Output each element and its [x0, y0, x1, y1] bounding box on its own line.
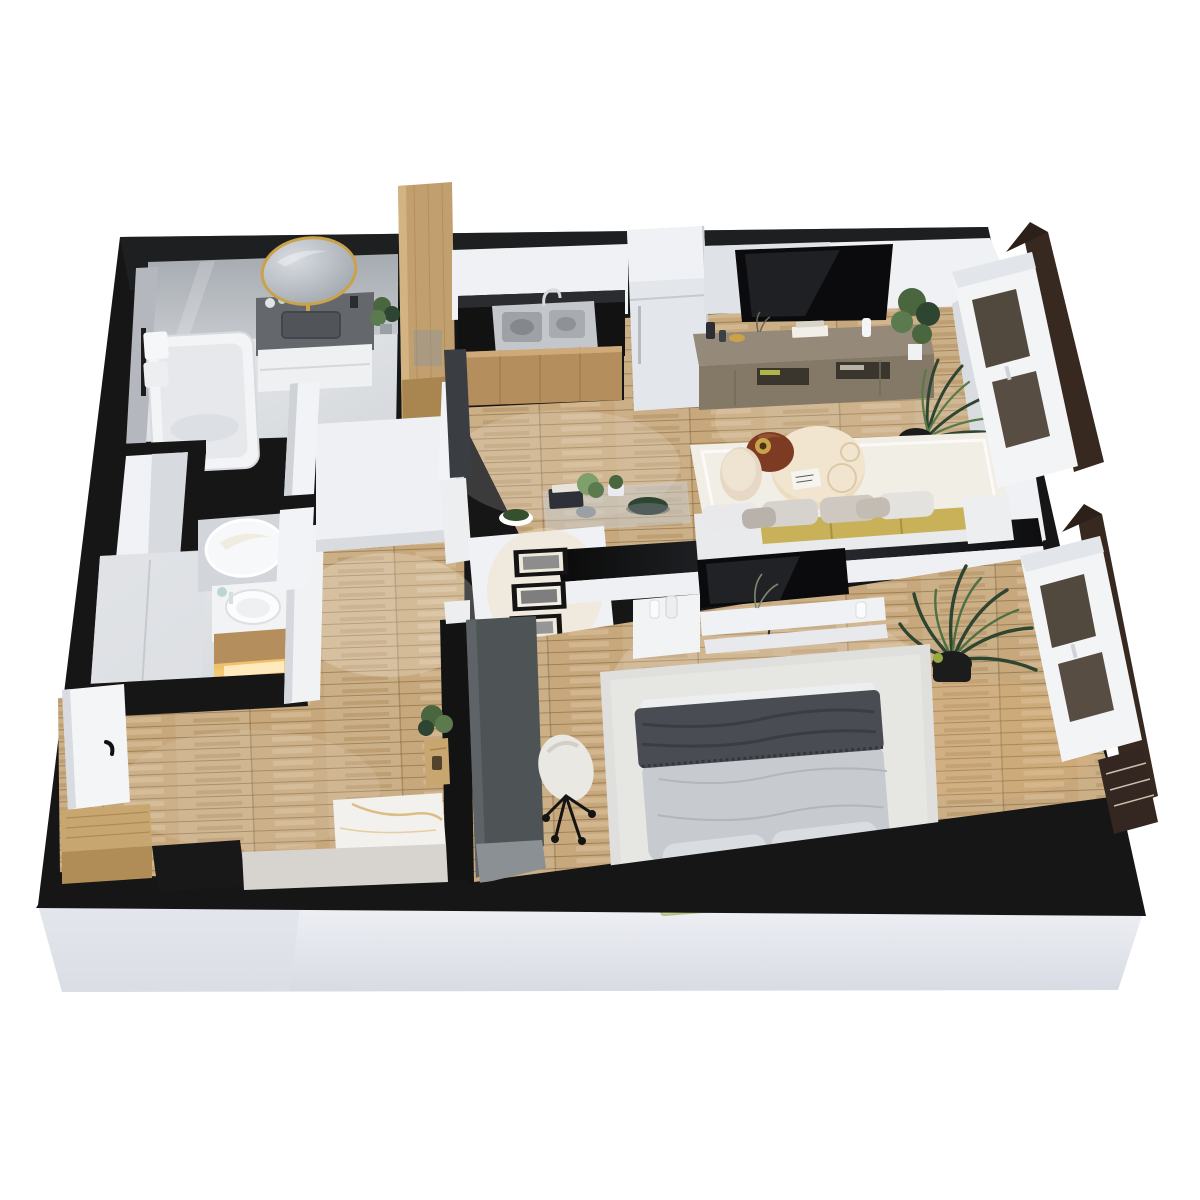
- nightstand-left: [735, 874, 794, 898]
- shelf-branch: [755, 574, 778, 608]
- shelf-vase-1: [650, 600, 659, 618]
- book-stack: [548, 487, 583, 509]
- window-handle-2: [1070, 644, 1077, 659]
- shower-room-vanity: [212, 580, 294, 684]
- entry-door: [62, 684, 130, 810]
- niche-frame-top: [114, 440, 206, 458]
- succulent-pot: [608, 484, 624, 496]
- shower-room-north-wall: [198, 512, 300, 592]
- vanity2-cabinet: [214, 628, 294, 670]
- picture-glow: [487, 528, 603, 652]
- living-palm: [898, 360, 1002, 470]
- living-window-frame: [952, 252, 1078, 488]
- display-plant: [577, 473, 599, 495]
- bedroom-palm-pot: [932, 651, 972, 677]
- sofa-seat-mustard: [760, 507, 971, 546]
- south-wall-top: [36, 798, 1146, 916]
- bed-duvet: [641, 743, 890, 862]
- kitchen-sink: [492, 290, 598, 355]
- bedroom-light-patch: [610, 605, 930, 775]
- niche-frame-bottom: [108, 552, 200, 582]
- door-frame-stub-1: [284, 382, 320, 496]
- desk-lower-shelf: [476, 840, 546, 884]
- page-background: [0, 0, 1200, 1200]
- wall-slab: [38, 227, 1143, 913]
- stone-decor: [576, 506, 596, 518]
- window-handle: [1004, 366, 1011, 381]
- chair-base: [546, 796, 590, 838]
- kitchen-light-patch: [450, 410, 680, 520]
- niche-interior-shade: [148, 452, 190, 555]
- niche-frame-right: [180, 451, 206, 558]
- floating-shelves: [633, 574, 888, 659]
- bedroom-warm-patch: [860, 680, 1100, 800]
- desk: [466, 616, 546, 884]
- bathroom-main-left-wall: [126, 267, 158, 446]
- shower-area: [90, 550, 206, 694]
- bedroom: [440, 548, 1118, 916]
- soap-bottle: [265, 298, 275, 308]
- plant-stand: [418, 705, 453, 786]
- bathtub: [147, 331, 260, 472]
- vanity-sink: [282, 312, 340, 338]
- door-handle: [106, 742, 112, 754]
- kitchen: [444, 226, 712, 532]
- bed: [634, 680, 915, 916]
- bedroom-tv: [697, 548, 849, 640]
- divider-wall-top: [556, 518, 1043, 582]
- bedroom-window-frame: [1020, 536, 1142, 762]
- round-mirror: [203, 516, 286, 580]
- kitchen-faucet: [544, 290, 560, 306]
- hall-floor: [58, 516, 466, 878]
- sofa-armrest-right: [962, 494, 1014, 544]
- wardrobe-column: [398, 182, 456, 431]
- picture-wall: [468, 526, 614, 652]
- corridor-walls: [276, 380, 472, 591]
- coffee-table-set: [720, 426, 865, 509]
- palm-pot: [898, 428, 934, 452]
- door-frame-stub-3: [276, 507, 314, 591]
- kitchen-hall-wall: [440, 478, 472, 564]
- bed-throw: [634, 689, 884, 768]
- living-rug: [690, 432, 1018, 574]
- vanity2-faucet: [229, 592, 233, 604]
- bedroom-window: [1020, 504, 1158, 834]
- entry-bench: [60, 804, 152, 884]
- display-table: [499, 473, 690, 532]
- nightstand-right: [875, 860, 934, 884]
- sofa-front-edge: [763, 529, 972, 556]
- entry-furniture: [60, 684, 453, 892]
- bathroom-main-vanity: [256, 292, 374, 392]
- vanity-cabinet: [258, 344, 372, 392]
- building-fascia-shade: [38, 905, 300, 992]
- shower-room-floor: [90, 546, 298, 694]
- diffuser: [350, 296, 358, 308]
- kitchen-living-floor: [456, 302, 1043, 592]
- desk-chair: [530, 727, 602, 845]
- shower-room: [82, 512, 324, 718]
- entry-hall: [58, 516, 483, 878]
- bathroom-main: [126, 233, 400, 473]
- tumbler: [278, 296, 286, 304]
- vanity2-counter: [212, 580, 294, 642]
- coffee-table: [771, 427, 865, 509]
- living-tv: [735, 244, 893, 322]
- divider-wall-face: [561, 546, 1047, 604]
- bathroom-main-north-wall: [148, 254, 398, 342]
- closet-niche: [108, 440, 206, 582]
- vanity2-underlight: [214, 658, 294, 684]
- towel-rack: [141, 328, 169, 396]
- niche-interior: [116, 452, 190, 558]
- living-plant-tall: [891, 288, 940, 360]
- greens-bowl: [499, 510, 533, 526]
- wardrobe-column-base: [402, 376, 456, 431]
- bed-base: [641, 682, 890, 898]
- vanity-counter: [256, 292, 374, 356]
- moss-bowl: [628, 497, 668, 515]
- hall-light-patch: [293, 553, 483, 677]
- console-open-shelf-1: [757, 368, 809, 385]
- sofa-chaise-left: [694, 509, 768, 564]
- bathroom-main-north-wall-vein: [174, 261, 215, 341]
- sofa-back-pillows: [701, 490, 935, 532]
- gold-faucet: [298, 293, 318, 311]
- living-window: [952, 222, 1104, 488]
- pouf: [720, 447, 762, 501]
- shelf-vase-2: [666, 596, 677, 618]
- bathroom-main-floor: [140, 312, 398, 442]
- marble-console: [242, 793, 448, 890]
- bathroom-plant: [370, 297, 400, 334]
- shower-room-east-wall: [284, 524, 324, 704]
- entry-mat: [152, 840, 246, 892]
- desk-nook-wall: [440, 618, 474, 902]
- side-table-brown: [746, 432, 794, 472]
- media-console: [693, 312, 934, 410]
- bedroom-window-pane-2: [1058, 652, 1114, 722]
- fridge-handle: [638, 306, 641, 364]
- building-fascia: [38, 905, 1143, 992]
- bedroom-window-louver-panel: [1098, 748, 1158, 834]
- vanity2-bottle: [217, 587, 227, 597]
- vanity-back-wall: [316, 416, 444, 552]
- kitchen-counter-backsplash: [458, 290, 625, 362]
- console-decor: [706, 312, 871, 342]
- apartment-3d-floor-plan: [0, 0, 1200, 1200]
- wall-slab-sheen: [120, 227, 1000, 290]
- bedroom-window-pane-1: [1040, 574, 1096, 648]
- table-lamp: [755, 438, 771, 454]
- gallery-frames: [509, 548, 568, 643]
- magazine: [791, 468, 821, 490]
- vessel-sink: [226, 590, 280, 624]
- bedroom-floor: [470, 556, 1118, 882]
- bedroom-rug: [600, 644, 940, 886]
- bed-pillows: [661, 820, 882, 898]
- bedroom-window-shutter: [1078, 514, 1158, 806]
- living-window-bay: [952, 266, 1046, 552]
- living-north-wall: [704, 238, 1002, 314]
- shower-room-south-wall: [82, 672, 308, 718]
- sofa: [694, 490, 1014, 564]
- headboard: [660, 871, 915, 915]
- living-light-patch: [715, 365, 975, 475]
- kitchen-tall-dark-cabinet: [444, 349, 472, 478]
- fridge: [627, 226, 712, 411]
- round-gold-mirror: [258, 233, 359, 310]
- kitchen-north-wall: [452, 244, 628, 320]
- living-window-pane-2: [992, 371, 1050, 448]
- kitchen-base-cabinets: [460, 346, 622, 406]
- shelf-vase-3: [856, 602, 866, 618]
- living-window-shutter: [1024, 232, 1104, 472]
- entry-light-patch: [120, 730, 380, 850]
- bedroom-palm: [900, 566, 1036, 682]
- console-open-shelf-2: [836, 362, 890, 379]
- living-window-pane-1: [972, 289, 1030, 368]
- divider-wall: [468, 518, 1047, 652]
- floor-plan-canvas: [0, 0, 1200, 1200]
- living-room: [690, 238, 1046, 574]
- door-frame-stub-2: [438, 380, 468, 482]
